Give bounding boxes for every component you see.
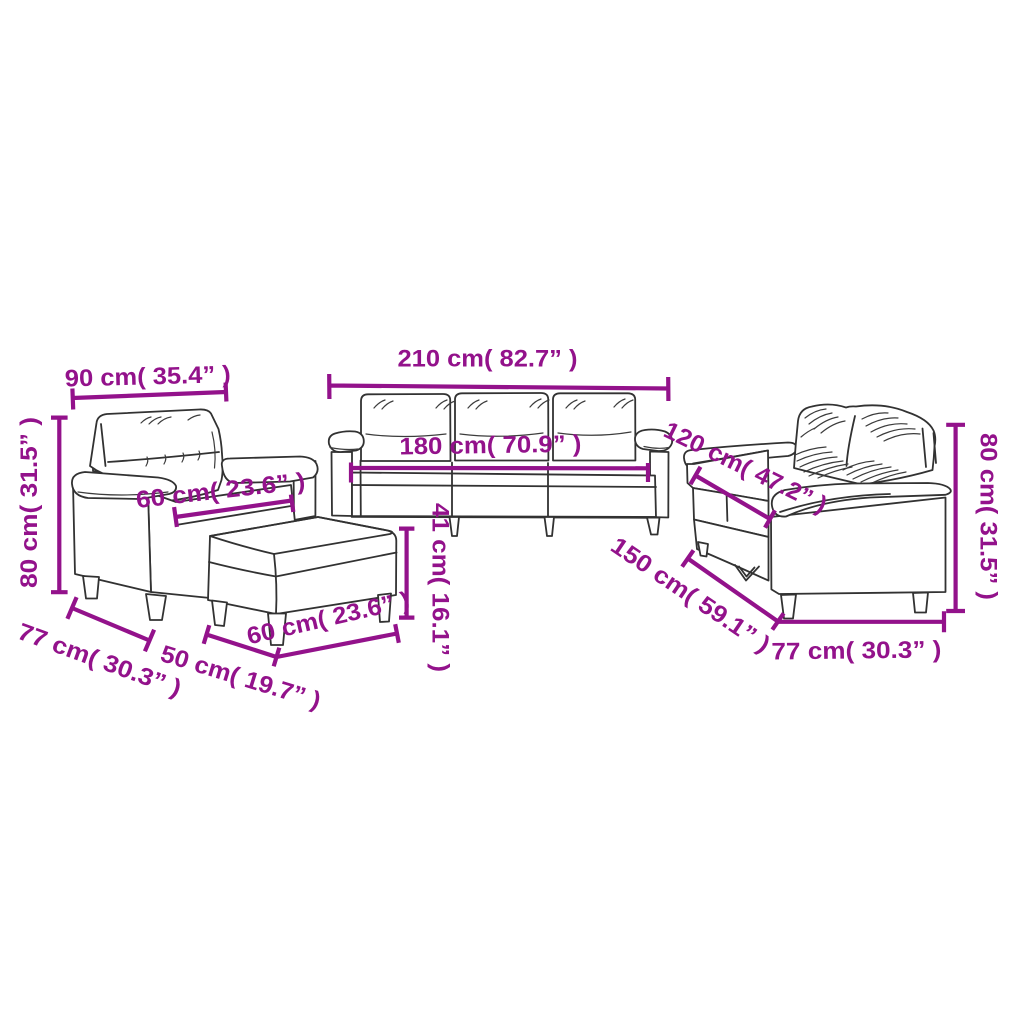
svg-text:77 cm( 30.3” ): 77 cm( 30.3” ) <box>771 636 941 665</box>
svg-text:210 cm( 82.7” ): 210 cm( 82.7” ) <box>398 346 578 373</box>
svg-text:180 cm( 70.9” ): 180 cm( 70.9” ) <box>399 431 581 461</box>
svg-text:90 cm( 35.4” ): 90 cm( 35.4” ) <box>64 361 231 392</box>
svg-text:41 cm( 16.1” ): 41 cm( 16.1” ) <box>427 503 454 672</box>
svg-text:80 cm( 31.5” ): 80 cm( 31.5” ) <box>975 433 1002 600</box>
svg-text:80 cm( 31.5” ): 80 cm( 31.5” ) <box>16 417 43 588</box>
